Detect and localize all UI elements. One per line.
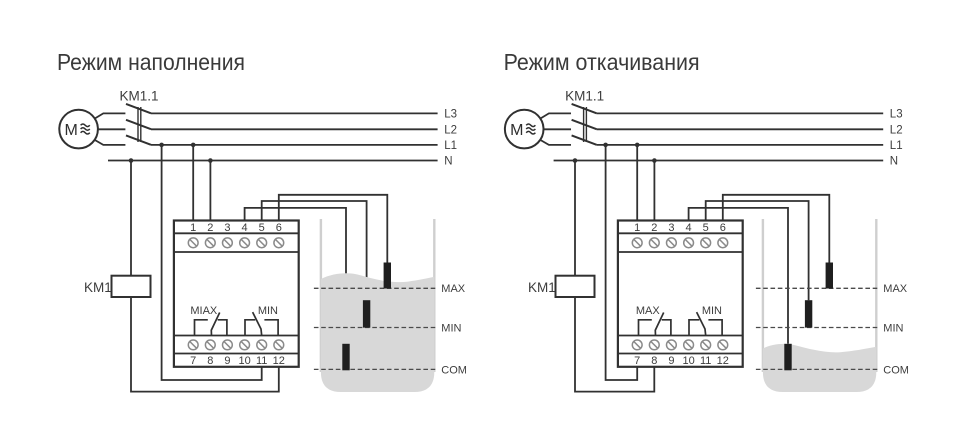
svg-text:11: 11 xyxy=(256,355,267,367)
svg-text:8: 8 xyxy=(651,355,657,367)
svg-text:MIAX: MIAX xyxy=(190,305,218,317)
svg-text:L3: L3 xyxy=(890,108,903,120)
svg-text:7: 7 xyxy=(634,355,640,367)
svg-text:L2: L2 xyxy=(890,124,903,136)
svg-text:11: 11 xyxy=(700,355,711,367)
svg-text:7: 7 xyxy=(190,355,196,367)
svg-text:6: 6 xyxy=(276,222,282,234)
svg-text:6: 6 xyxy=(720,222,726,234)
svg-text:2: 2 xyxy=(207,222,213,234)
svg-text:5: 5 xyxy=(259,222,265,234)
svg-text:L1: L1 xyxy=(890,140,903,152)
svg-text:MAX: MAX xyxy=(636,305,661,317)
svg-text:MAX: MAX xyxy=(883,283,908,295)
svg-text:2: 2 xyxy=(651,222,657,234)
svg-text:M: M xyxy=(65,122,78,139)
svg-text:COM: COM xyxy=(441,364,467,376)
svg-text:L3: L3 xyxy=(444,108,457,120)
svg-text:9: 9 xyxy=(224,355,230,367)
svg-text:MIN: MIN xyxy=(441,322,461,334)
svg-text:5: 5 xyxy=(703,222,709,234)
svg-text:3: 3 xyxy=(668,222,674,234)
svg-text:1: 1 xyxy=(190,222,196,234)
svg-text:COM: COM xyxy=(883,364,909,376)
svg-text:10: 10 xyxy=(682,355,694,367)
svg-text:Режим откачивания: Режим откачивания xyxy=(504,49,700,75)
svg-text:12: 12 xyxy=(273,355,285,367)
svg-text:N: N xyxy=(890,156,898,168)
svg-text:4: 4 xyxy=(242,222,248,234)
svg-text:1: 1 xyxy=(634,222,640,234)
svg-text:4: 4 xyxy=(686,222,692,234)
svg-text:L1: L1 xyxy=(444,140,457,152)
svg-text:KM1.1: KM1.1 xyxy=(565,88,604,103)
svg-text:KM1: KM1 xyxy=(84,280,112,295)
svg-text:KM1.1: KM1.1 xyxy=(120,88,159,103)
svg-text:8: 8 xyxy=(207,355,213,367)
svg-text:N: N xyxy=(444,156,452,168)
svg-text:Режим наполнения: Режим наполнения xyxy=(57,49,245,75)
svg-text:9: 9 xyxy=(668,355,674,367)
svg-text:KM1: KM1 xyxy=(528,280,556,295)
svg-text:MIN: MIN xyxy=(258,305,278,317)
svg-text:M: M xyxy=(510,122,523,139)
svg-text:MIN: MIN xyxy=(883,322,903,334)
svg-text:MAX: MAX xyxy=(441,283,466,295)
svg-text:10: 10 xyxy=(238,355,250,367)
svg-text:L2: L2 xyxy=(444,124,457,136)
svg-text:3: 3 xyxy=(224,222,230,234)
svg-text:MIN: MIN xyxy=(702,305,722,317)
svg-text:12: 12 xyxy=(717,355,729,367)
